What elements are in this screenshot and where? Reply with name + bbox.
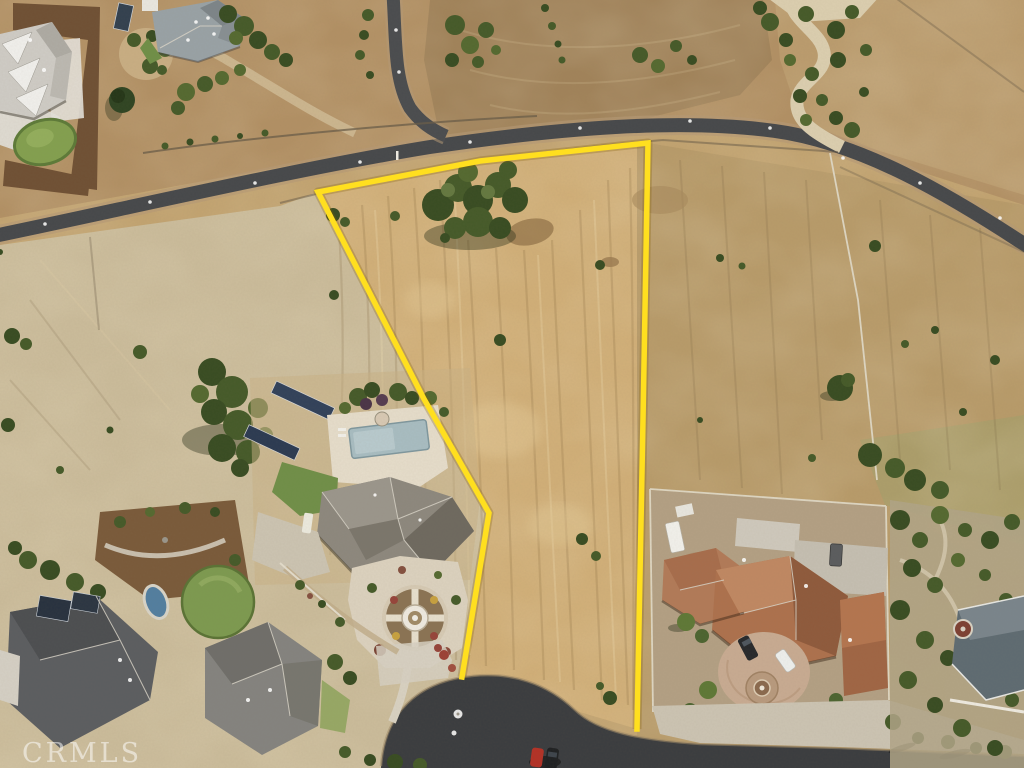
aerial-photo-svg: Aerial drone photograph of a vacant land… (0, 0, 1024, 768)
crmls-watermark: CRMLS (22, 738, 142, 768)
aerial-photo: Aerial drone photograph of a vacant land… (0, 0, 1024, 768)
photo-grain (0, 0, 1024, 768)
